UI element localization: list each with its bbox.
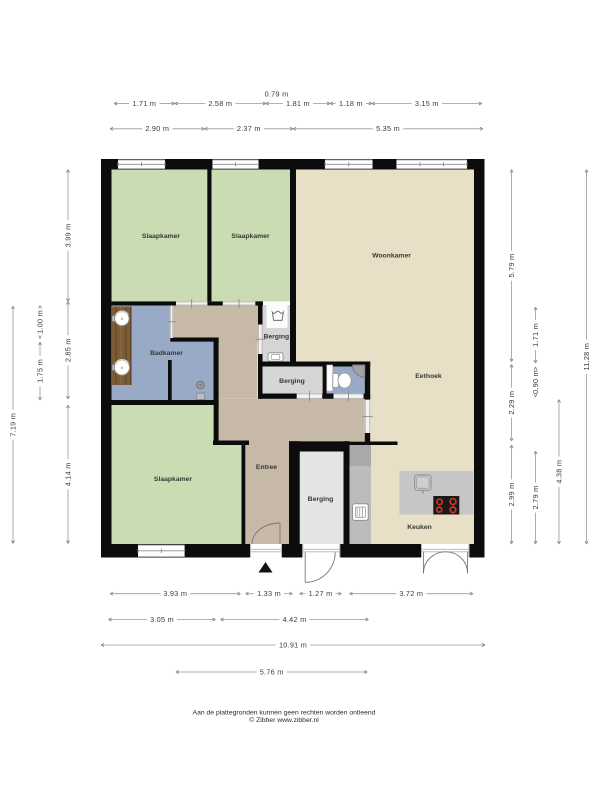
- svg-text:4.38 m: 4.38 m: [554, 460, 563, 484]
- svg-text:Eethoek: Eethoek: [415, 373, 442, 380]
- svg-text:1.27 m: 1.27 m: [309, 589, 333, 598]
- svg-text:Slaapkamer: Slaapkamer: [231, 233, 270, 240]
- svg-text:2.85 m: 2.85 m: [63, 338, 72, 362]
- svg-text:7.19 m: 7.19 m: [8, 413, 17, 437]
- svg-text:11.28 m: 11.28 m: [582, 343, 591, 371]
- svg-text:10.91 m: 10.91 m: [279, 640, 307, 649]
- svg-text:1.71 m: 1.71 m: [531, 323, 540, 347]
- svg-text:1.81 m: 1.81 m: [286, 99, 310, 108]
- svg-text:Slaapkamer: Slaapkamer: [142, 233, 181, 240]
- svg-text:3.15 m: 3.15 m: [415, 99, 439, 108]
- svg-text:Entree: Entree: [256, 464, 277, 471]
- svg-text:2.58 m: 2.58 m: [208, 99, 232, 108]
- svg-text:2.29 m: 2.29 m: [507, 391, 516, 415]
- svg-text:2.79 m: 2.79 m: [531, 486, 540, 510]
- svg-text:Badkamer: Badkamer: [150, 350, 183, 357]
- svg-text:3.72 m: 3.72 m: [399, 589, 423, 598]
- svg-text:3.99 m: 3.99 m: [63, 224, 72, 248]
- svg-text:3.05 m: 3.05 m: [150, 615, 174, 624]
- svg-text:5.79 m: 5.79 m: [507, 254, 516, 278]
- svg-text:© Zibber www.zibber.nl: © Zibber www.zibber.nl: [249, 716, 319, 724]
- svg-text:1.33 m: 1.33 m: [257, 589, 281, 598]
- svg-text:4.42 m: 4.42 m: [283, 615, 307, 624]
- svg-text:Aan de plattegronden kunnen ge: Aan de plattegronden kunnen geen rechten…: [193, 710, 376, 717]
- svg-text:2.99 m: 2.99 m: [507, 483, 516, 507]
- svg-text:1.18 m: 1.18 m: [339, 99, 363, 108]
- svg-text:1.75 m: 1.75 m: [35, 359, 44, 383]
- svg-text:Berging: Berging: [279, 378, 305, 385]
- svg-text:Keuken: Keuken: [407, 524, 432, 531]
- svg-text:4.14 m: 4.14 m: [63, 462, 72, 486]
- svg-text:3.93 m: 3.93 m: [163, 589, 187, 598]
- svg-text:Woonkamer: Woonkamer: [372, 253, 411, 260]
- svg-text:1.71 m: 1.71 m: [132, 99, 156, 108]
- svg-text:2.37 m: 2.37 m: [237, 124, 261, 133]
- svg-text:0.90 m: 0.90 m: [531, 370, 540, 394]
- svg-text:0.79 m: 0.79 m: [265, 89, 289, 98]
- svg-text:Slaapkamer: Slaapkamer: [154, 476, 193, 483]
- svg-text:1.00 m: 1.00 m: [35, 310, 44, 334]
- svg-text:Berging: Berging: [308, 496, 334, 503]
- svg-text:2.90 m: 2.90 m: [145, 124, 169, 133]
- svg-text:Berging: Berging: [263, 334, 289, 341]
- svg-text:5.76 m: 5.76 m: [260, 667, 284, 676]
- svg-text:5.35 m: 5.35 m: [376, 124, 400, 133]
